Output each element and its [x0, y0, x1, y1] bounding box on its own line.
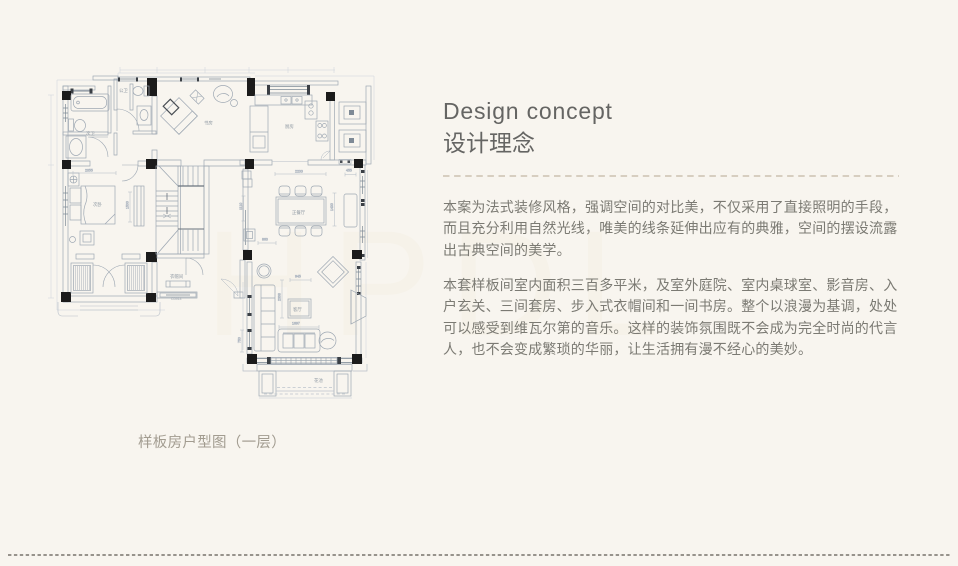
svg-text:1500: 1500 — [126, 201, 130, 209]
svg-text:公卫: 公卫 — [119, 88, 128, 93]
svg-text:衣帽间: 衣帽间 — [170, 273, 183, 280]
svg-text:863: 863 — [262, 238, 268, 242]
svg-text:2055: 2055 — [85, 169, 93, 173]
svg-text:CD014: CD014 — [171, 297, 182, 301]
svg-text:1697: 1697 — [292, 322, 300, 326]
svg-text:书房: 书房 — [204, 120, 213, 127]
svg-text:2368: 2368 — [278, 293, 282, 301]
svg-text:2200: 2200 — [295, 170, 303, 174]
svg-text:次卧: 次卧 — [93, 201, 102, 208]
svg-text:945: 945 — [295, 275, 301, 279]
svg-text:1110: 1110 — [239, 203, 243, 210]
svg-text:厨房: 厨房 — [285, 123, 294, 130]
svg-text:正餐厅: 正餐厅 — [292, 209, 306, 216]
svg-text:次卫: 次卫 — [86, 130, 95, 137]
svg-text:750: 750 — [238, 337, 242, 343]
svg-text:花池: 花池 — [314, 377, 323, 384]
svg-text:455: 455 — [346, 169, 352, 173]
svg-text:1430: 1430 — [330, 203, 334, 211]
svg-text:客厅: 客厅 — [293, 306, 302, 313]
